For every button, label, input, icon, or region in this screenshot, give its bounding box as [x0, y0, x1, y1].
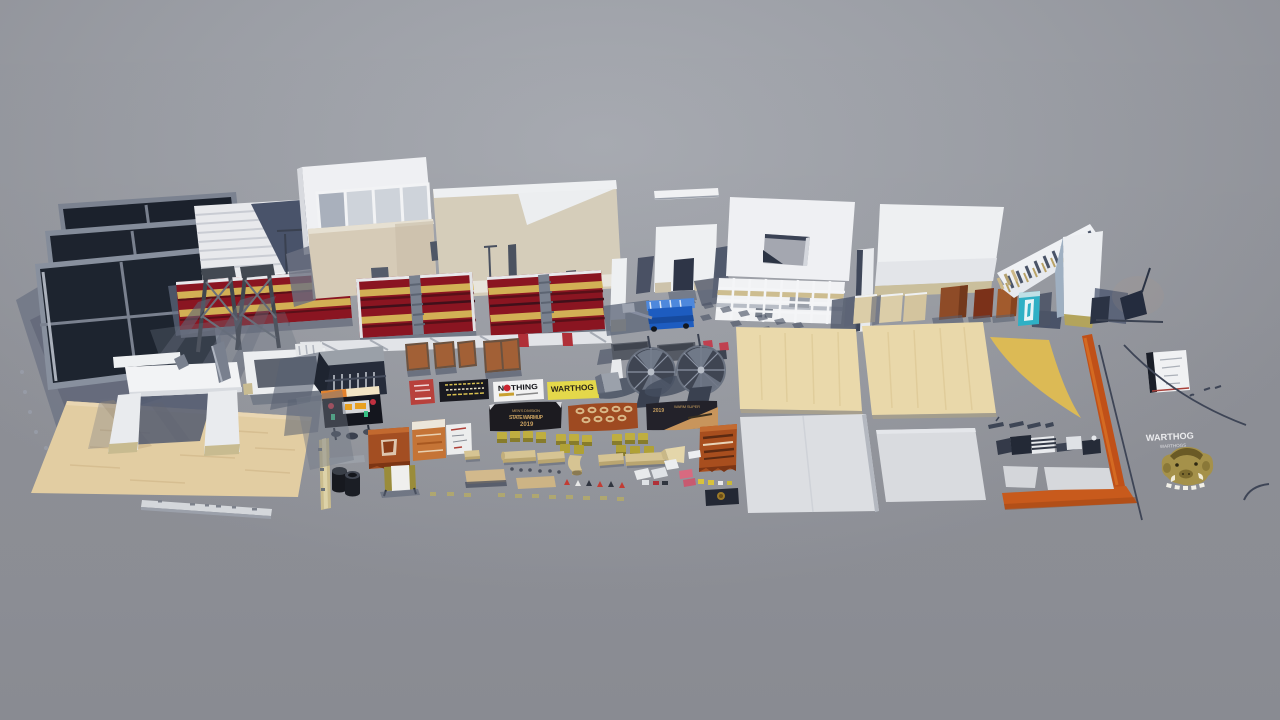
svg-text:2019: 2019: [653, 408, 664, 414]
svg-text:STATE WARMUP: STATE WARMUP: [509, 415, 544, 421]
svg-text:MEN'S DIVISION: MEN'S DIVISION: [512, 408, 540, 413]
svg-text:2019: 2019: [520, 422, 534, 428]
svg-text:WARM SUPER: WARM SUPER: [674, 404, 700, 409]
